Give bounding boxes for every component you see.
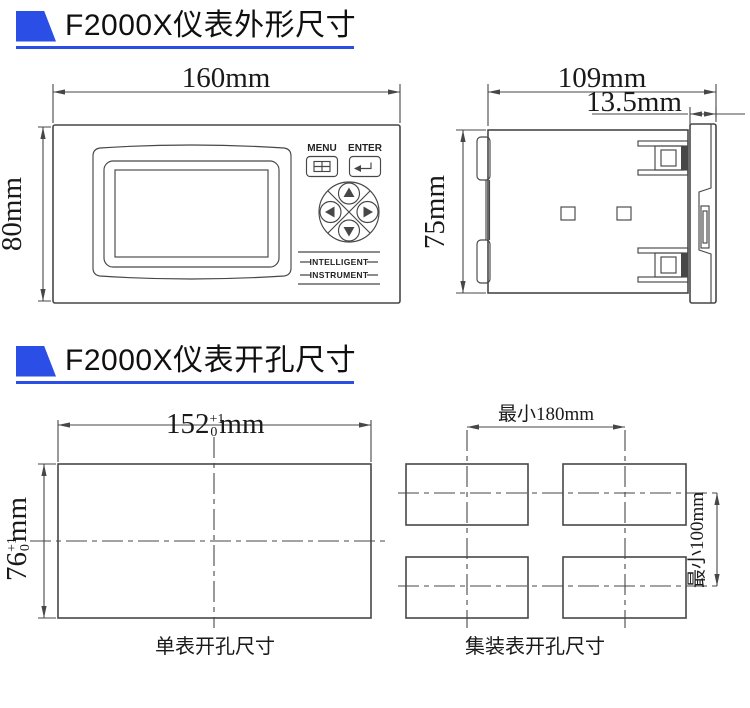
section-title-outline: F2000X仪表外形尺寸 (65, 9, 356, 43)
logo-line2: INSTRUMENT (310, 270, 369, 280)
display-screen (115, 170, 268, 257)
row-centerlines (398, 493, 722, 586)
case-vents (561, 207, 631, 220)
front-width-dim-label: 160mm (182, 62, 271, 94)
section-header-outline: F2000X仪表外形尺寸 (16, 9, 354, 49)
dpad (319, 182, 379, 242)
enter-button-label: ENTER (348, 143, 383, 154)
page: 160mm 80mm MENU ENTER (0, 0, 750, 708)
section-title-cutout: F2000X仪表开孔尺寸 (65, 344, 356, 378)
group-horizontal-dim-label: 最小180mm (498, 403, 594, 425)
group-cutout-drawing: 最小180mm 最小100mm 集装表开孔尺寸 (398, 403, 722, 658)
display-bezel (93, 145, 291, 279)
group-vertical-dim-label: 最小100mm (686, 492, 708, 588)
single-cutout-caption: 单表开孔尺寸 (155, 635, 275, 658)
title-marker-icon (16, 346, 56, 377)
front-view-drawing: 160mm 80mm MENU ENTER (0, 62, 400, 303)
section-header-cutout: F2000X仪表开孔尺寸 (16, 344, 354, 384)
display-frame (104, 161, 279, 267)
title-marker-icon (16, 11, 56, 42)
single-height-dim-label: 76+10mm (1, 497, 33, 581)
single-width-dim-label: 152+10mm (166, 408, 265, 440)
logo-line1: INTELLIGENT (309, 257, 369, 267)
clamp-bracket-bottom (638, 248, 688, 282)
side-body-outline (488, 130, 688, 293)
brand-logo: INTELLIGENT INSTRUMENT (298, 252, 380, 284)
arrow-down-icon (344, 227, 355, 237)
menu-grid-icon (314, 162, 330, 172)
side-height-dim-label: 75mm (419, 175, 451, 250)
arrow-up-icon (344, 188, 355, 198)
front-height-dim-label: 80mm (0, 177, 28, 252)
arrow-right-icon (364, 207, 374, 218)
single-cutout-drawing: 152+10mm 76+10mm 单表开孔尺寸 (1, 408, 386, 658)
front-bezel-profile (690, 124, 716, 303)
enter-return-icon (354, 163, 371, 173)
clamp-bracket-top (638, 141, 688, 175)
side-bezel-dim-label: 13.5mm (586, 86, 682, 118)
menu-button-label: MENU (307, 143, 336, 154)
enter-button (350, 157, 381, 177)
arrow-left-icon (325, 207, 335, 218)
column-centerlines (467, 430, 625, 628)
group-cutout-caption: 集装表开孔尺寸 (465, 635, 605, 658)
side-view-drawing: 109mm 13.5mm 75mm (419, 62, 745, 303)
